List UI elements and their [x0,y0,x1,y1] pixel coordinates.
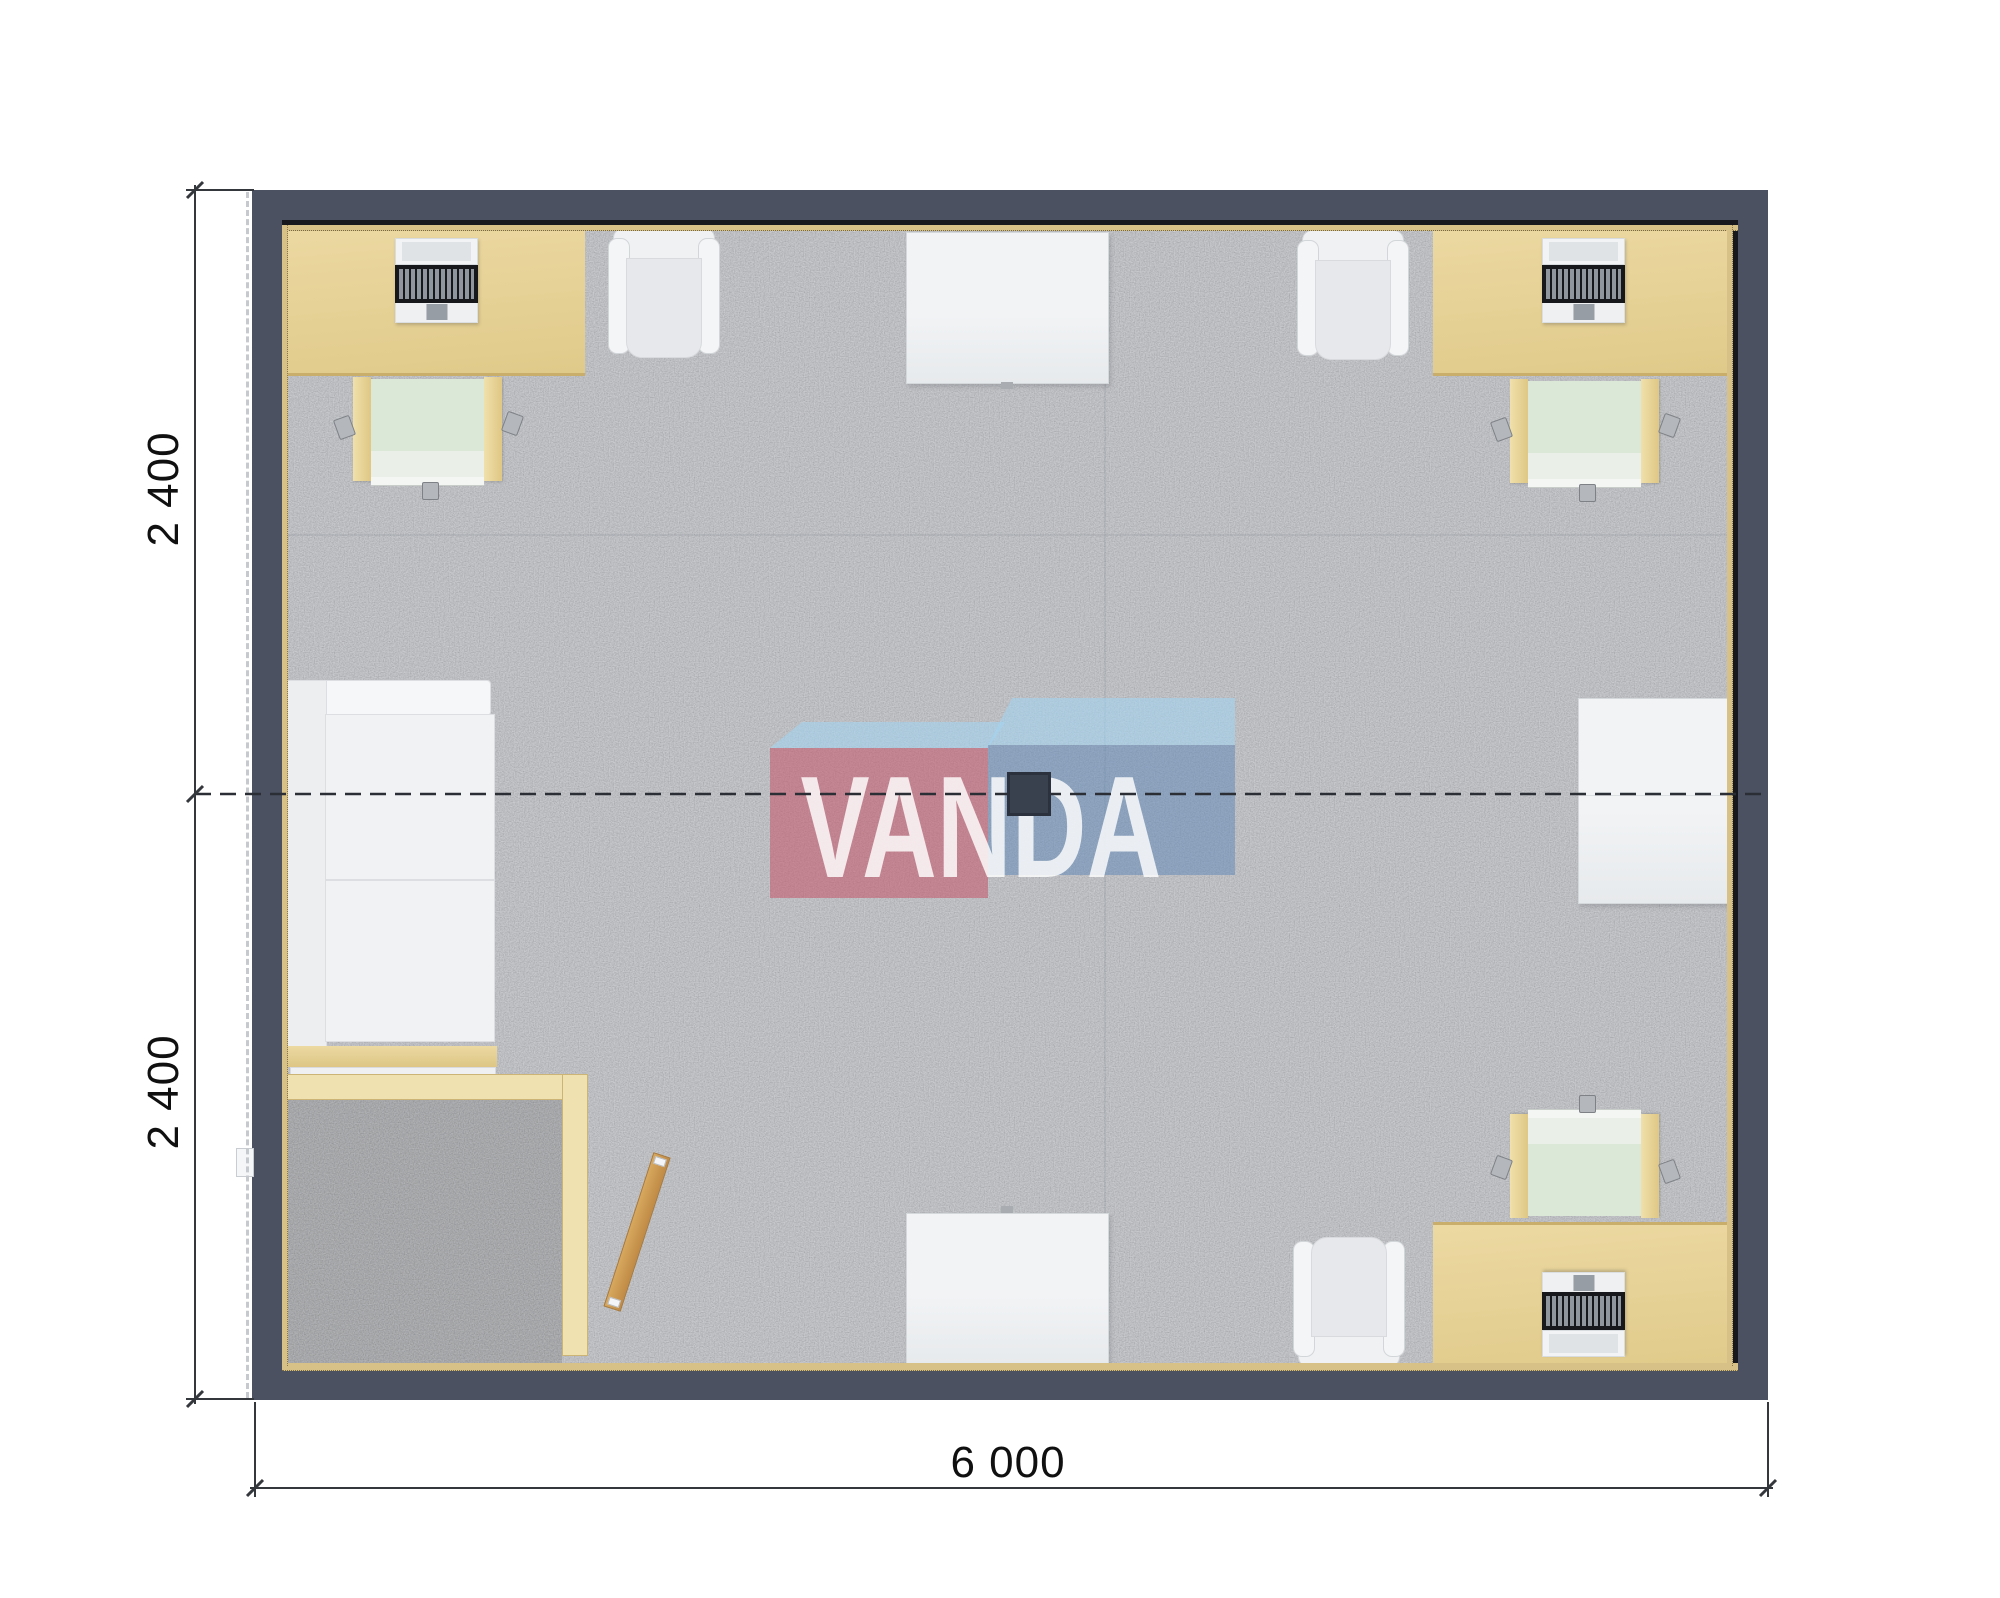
chair-seat [1528,1144,1641,1216]
chair-frame-left [353,377,371,481]
laptop-keyboard [1542,265,1625,303]
armchair-seat [1311,1237,1387,1337]
sofa-cushion [325,880,495,1042]
logo-red-box-top [770,722,1005,748]
laptop-screen [395,238,478,265]
chair-frame-right [484,377,502,481]
side-cabinet [1578,698,1730,904]
kitchen-counter [287,1046,497,1067]
meeting-table-top [906,232,1109,384]
laptop-screen-panel [1549,242,1617,261]
laptop-screen [1542,238,1625,265]
desk-chair-top-right [1493,377,1677,501]
laptop-palmrest [1542,303,1625,323]
exterior-step [236,1148,254,1177]
logo-blue-box-top [988,698,1235,745]
laptop-palmrest [395,303,478,323]
desk-chair-bottom-right [1493,1096,1677,1220]
wall-right [1738,190,1768,1400]
carpet-texture-dark [282,1096,562,1363]
chair-seat [1528,381,1641,453]
laptop-touchpad [1573,304,1594,320]
chair-frame-left [1510,379,1528,483]
armchair-top-right [1297,230,1409,362]
chair-frame-right [1641,379,1659,483]
laptop [1542,238,1625,323]
dim-tick [247,1480,263,1496]
laptop-screen [1542,1330,1625,1357]
laptop-palmrest [1542,1272,1625,1292]
vanda-watermark-logo: VANDA [755,690,1255,910]
entry-partition-right [562,1074,588,1356]
watermark-text: VANDA [800,746,1161,908]
laptop [1542,1272,1625,1357]
wall-bottom [252,1370,1768,1400]
laptop-screen-panel [1549,1334,1617,1353]
dim-tick [1760,1480,1776,1496]
laptop [395,238,478,323]
meeting-table-bottom [906,1213,1109,1365]
armchair-seat [1315,260,1391,360]
chair-seat-front [371,451,484,477]
chair-frame-left [1510,1114,1528,1218]
dim-tick [187,786,203,802]
chair-seat-front [1528,453,1641,479]
entry-partition-top [282,1074,588,1100]
door-hinge [607,1297,621,1308]
laptop-touchpad [426,304,447,320]
armchair-bottom-right [1293,1235,1405,1367]
laptop-touchpad [1573,1275,1594,1291]
carpet-seam [282,534,1738,536]
dimension-label-left-bottom: 2 400 [139,1034,189,1149]
wall-trim-bottom [282,1363,1738,1371]
roof-overhang-dashed-line [246,192,249,1398]
chair-seat-front [1528,1118,1641,1144]
wall-trim-top [282,225,1738,231]
floor-plan-canvas: VANDA [0,0,2000,1598]
wall-trim-left [282,225,288,1366]
sofa [287,680,497,1046]
armchair-top-left [608,228,720,360]
sofa-backrest [287,680,327,1048]
caster-wheel [1579,484,1596,502]
armchair-seat [626,258,702,358]
chair-seat [371,379,484,451]
door-hinge [653,1156,667,1167]
chair-frame-right [1641,1114,1659,1218]
desk-chair-top-left [336,375,520,499]
laptop-keyboard [1542,1292,1625,1330]
wall-top [252,190,1768,222]
dim-tick [187,182,203,198]
caster-wheel [1579,1095,1596,1113]
dim-tick [187,1391,203,1407]
laptop-keyboard [395,265,478,303]
laptop-screen-panel [402,242,470,261]
cabinet-seam [1579,795,1729,796]
wall-left [252,190,282,1400]
dimension-label-left-top: 2 400 [139,431,189,546]
table-leg-notch [1001,382,1013,389]
sofa-cushion [325,714,495,880]
ceiling-lamp [1007,772,1051,816]
caster-wheel [422,482,439,500]
dimension-label-bottom: 6 000 [950,1438,1065,1488]
wall-trim-right [1727,225,1733,1366]
entry-vestibule-floor [282,1096,562,1363]
